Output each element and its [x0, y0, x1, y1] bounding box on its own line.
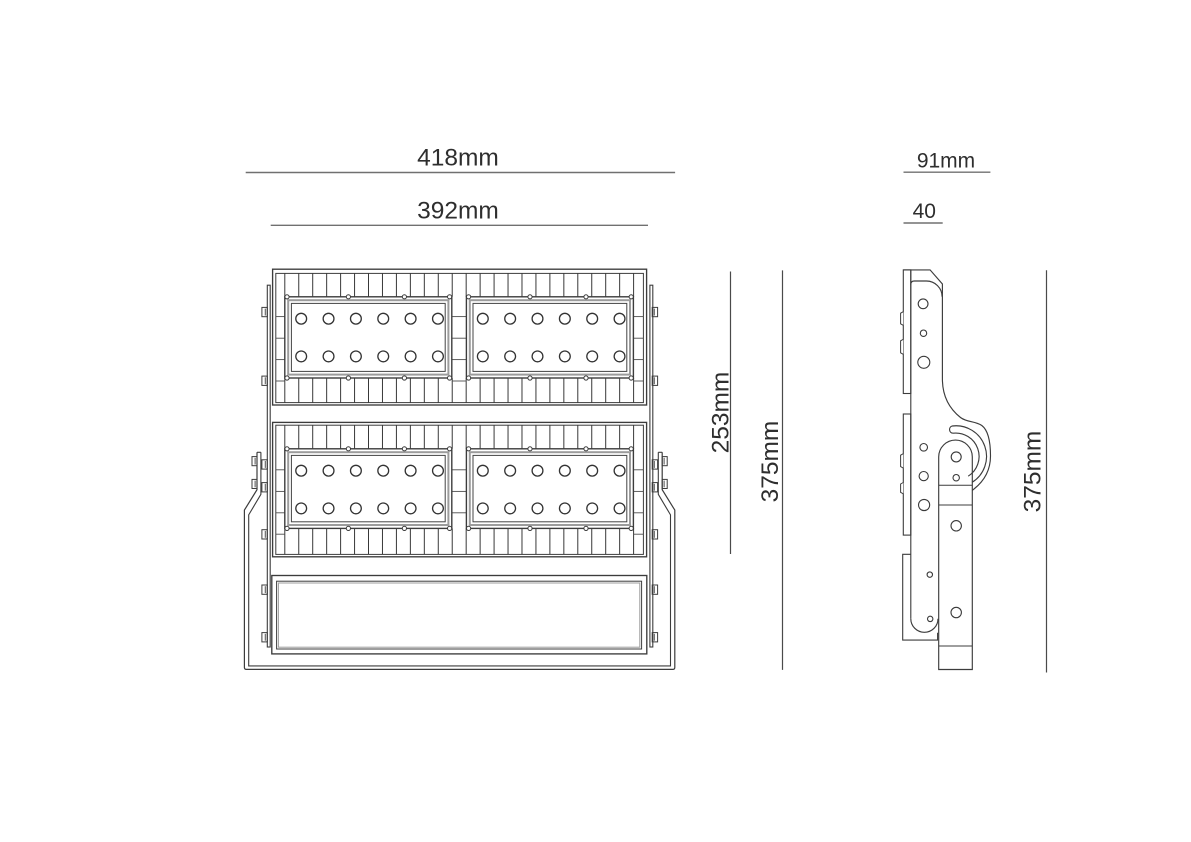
svg-text:91mm: 91mm	[917, 149, 975, 172]
svg-text:418mm: 418mm	[417, 145, 499, 172]
svg-text:375mm: 375mm	[757, 421, 784, 503]
svg-text:392mm: 392mm	[417, 198, 499, 225]
svg-text:40: 40	[913, 200, 936, 223]
svg-text:375mm: 375mm	[1019, 431, 1046, 513]
